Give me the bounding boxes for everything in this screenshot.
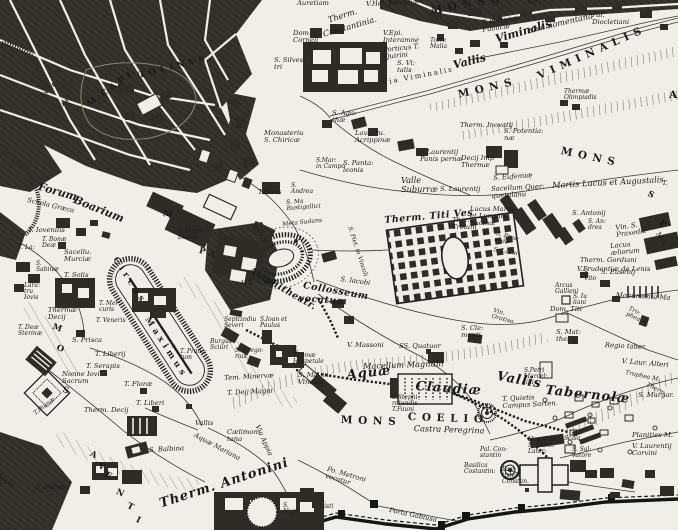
map-label: V. Laurentij Corvini xyxy=(632,443,672,457)
map-label: V I M I N A L I S xyxy=(536,26,644,82)
map-label: S. Grego: rius xyxy=(235,348,263,360)
map-label: Sacellu. Murciæ xyxy=(64,249,91,263)
map-label: Pal. Con: stantin xyxy=(480,447,507,459)
map-label: Po. Metroni vocatur xyxy=(324,466,367,491)
map-label: V xyxy=(96,462,106,473)
map-label: V. Massoni xyxy=(347,342,384,349)
map-label: Pal. Diocletiani xyxy=(592,12,629,26)
map-label: N xyxy=(114,488,125,500)
map-label: Vallis xyxy=(195,420,213,427)
map-label: S. An: drea xyxy=(588,219,606,231)
map-label: T.Pacis xyxy=(258,189,281,196)
map-label: Trophea M. xyxy=(625,370,661,383)
map-label: Septizodiu Severi xyxy=(224,317,256,329)
map-label: Scala xyxy=(564,436,581,442)
antique-rome-map: AuretiamV.Hel. FerrariæTherm.Constantini… xyxy=(0,0,678,530)
map-label: Mac xyxy=(654,231,668,247)
map-label: Via Viminalis xyxy=(382,66,454,87)
map-label: T. Deæ Sterinæ xyxy=(18,325,42,337)
map-label: M. C A P I xyxy=(86,71,134,109)
map-label: S. Mat: thei xyxy=(556,329,581,343)
map-label: T. Deij Magni xyxy=(227,388,273,397)
map-label: Thermæ Decij xyxy=(48,307,77,321)
map-label: C i r c u s xyxy=(111,256,146,304)
map-label: A xyxy=(669,90,678,101)
map-label: Lavacru. Acrippinæ xyxy=(355,130,391,144)
map-label: S. Panta: leonis xyxy=(343,160,374,174)
map-label: S. Cle: menti xyxy=(461,325,483,339)
map-label: Planities M. xyxy=(632,432,673,439)
map-label: Auretiam xyxy=(297,0,329,7)
map-label: Castra Peregrina xyxy=(414,424,485,435)
map-label: S. Sisti xyxy=(320,498,333,510)
map-label: Regio taber. xyxy=(605,342,647,351)
map-label: Sacellum Quer: quetulanu xyxy=(491,183,545,200)
map-label: M xyxy=(162,210,174,221)
map-label: Boarium xyxy=(72,194,126,225)
map-label: S. Eufemiæ xyxy=(493,172,533,182)
map-label: Thermæ Olimpiadis xyxy=(564,89,597,101)
map-label: S. Nigri xyxy=(283,503,299,515)
map-label: S. Vito xyxy=(584,270,596,282)
map-label: Martis Lucus et Augustalis xyxy=(552,175,664,189)
map-label: E xyxy=(103,471,113,482)
map-label: Hospitale S. Ioann: Later: xyxy=(528,437,557,456)
map-label: M O N S xyxy=(560,146,617,168)
map-label: O xyxy=(55,344,65,355)
map-label: Porta Gabiusa xyxy=(389,507,438,524)
map-label: T. Liberij xyxy=(95,351,125,358)
map-label: Vin. Oratiso xyxy=(491,308,516,326)
map-label: P A xyxy=(198,247,217,260)
map-label: S xyxy=(646,190,656,201)
map-label: S. Silves: tri xyxy=(274,57,305,71)
map-label: I xyxy=(134,516,142,526)
map-label: T xyxy=(125,502,135,513)
map-label: S. Balbina xyxy=(149,445,184,454)
map-label: M O N S xyxy=(457,77,514,100)
map-label: T O L I N V S xyxy=(138,55,207,80)
map-label: M O N S Q U I R xyxy=(430,0,541,17)
map-label: M xyxy=(51,323,63,335)
map-label: Monumenta Ma xyxy=(616,292,671,302)
map-label: Bap: tisteri Constan. xyxy=(502,467,529,486)
map-label: S. Prisca xyxy=(72,337,102,344)
map-label: V. Laur. Alteri xyxy=(621,358,669,369)
map-label: Macellum Magnum xyxy=(363,359,444,370)
map-label: Therm. Gordiani xyxy=(580,257,637,264)
map-label: S. Antonij xyxy=(572,210,606,217)
map-label: Lacus æliorum xyxy=(610,240,640,257)
map-label: Therm. Antonini xyxy=(158,456,291,511)
map-label: Vallis xyxy=(452,52,487,71)
map-label: T. Serapis xyxy=(86,363,120,370)
map-label: Monasteriu S. Chiricæ xyxy=(264,130,304,144)
map-label: SS. Quatuor xyxy=(399,343,441,350)
map-label: Lucus Martis et Lunonis Lucinæ xyxy=(470,206,515,227)
map-label: Dom. Corneli xyxy=(293,30,318,44)
map-label: ubi Faribus xyxy=(527,0,562,6)
map-label: S. Ma Bustigallici xyxy=(286,198,321,213)
map-label: Burgus Sciuri xyxy=(210,339,232,351)
map-label: T. Veneris xyxy=(96,318,126,324)
map-label: P xyxy=(658,219,668,230)
map-label: Decij Imp Thermæ xyxy=(461,155,494,169)
map-label: Basilica Costantin: xyxy=(464,463,495,475)
map-label: M a x i m u s xyxy=(143,316,187,377)
map-label: M O N S xyxy=(341,415,397,428)
map-labels-layer: AuretiamV.Hel. FerrariæTherm.Constantini… xyxy=(0,0,678,530)
map-label: T. xyxy=(662,180,668,187)
map-label: Tem. Minervæ xyxy=(224,372,274,382)
map-label: S. Andrea xyxy=(291,183,313,195)
map-label: T. Quietis Campus Sarten. xyxy=(502,393,558,410)
map-label: T. Liberi xyxy=(136,400,164,407)
map-label: Lara: tru Iovis xyxy=(24,283,40,302)
map-label: T. Bonæ Deæ xyxy=(42,237,66,249)
map-label: S.Mar: in Campo xyxy=(316,158,345,170)
map-label: A xyxy=(88,450,98,461)
map-label: T. Solis xyxy=(64,272,88,279)
map-label: S. Aga: thæ xyxy=(332,110,356,124)
map-label: S. Iacobi xyxy=(340,276,371,287)
map-label: S. Eusebij xyxy=(601,269,635,276)
map-label: Tro: phea M. xyxy=(625,306,653,328)
map-label: Claudiæ xyxy=(415,380,482,398)
map-label: S xyxy=(61,386,70,397)
map-label: Torre Malia xyxy=(430,38,447,50)
map-label: Appia xyxy=(0,472,16,490)
map-label: T. Prana: tum xyxy=(180,349,207,361)
map-label: Vin. S. Praxedæ xyxy=(615,221,647,239)
map-label: S.Ioan et Paulus xyxy=(260,317,287,329)
map-label: Nonne Iovi Sacrum xyxy=(62,371,100,385)
map-label: Dom. Titi xyxy=(550,306,582,313)
map-label: Meta Sudans xyxy=(282,218,322,228)
map-label: S. Ma- in Vincola xyxy=(298,372,329,386)
map-label: S. Sal: vatore xyxy=(572,447,591,459)
map-label: V. S xyxy=(241,281,252,287)
map-label: S. Piet. in Vincoli xyxy=(346,226,368,277)
map-label: V.Hel. Ferrariæ xyxy=(366,0,419,8)
map-label: S. Sabas xyxy=(36,484,65,491)
map-label: T. Mer: curis xyxy=(99,301,121,313)
map-label: T. La: xyxy=(18,245,35,251)
map-label: S. Sabinæ xyxy=(36,261,59,273)
map-label: S. Margar. xyxy=(638,392,674,399)
map-label: T. Matri Deoru. xyxy=(178,229,202,241)
map-label: Therm. Decij xyxy=(84,407,129,414)
map-label: S.Laurentij Panis pernæ xyxy=(420,149,463,163)
map-label: T.Dianæ xyxy=(33,397,56,417)
map-label: S. Potentia: næ xyxy=(504,128,544,142)
map-label: Valle Suburræ xyxy=(401,176,438,193)
map-label: T. Floræ xyxy=(124,381,152,388)
map-label: S. Thomæ Hospetale xyxy=(293,347,324,366)
map-label: S. Laurentij xyxy=(440,186,480,193)
map-label: T. Iovenilis xyxy=(28,227,65,234)
map-label: S.Petri Marcel: lini xyxy=(524,368,547,387)
